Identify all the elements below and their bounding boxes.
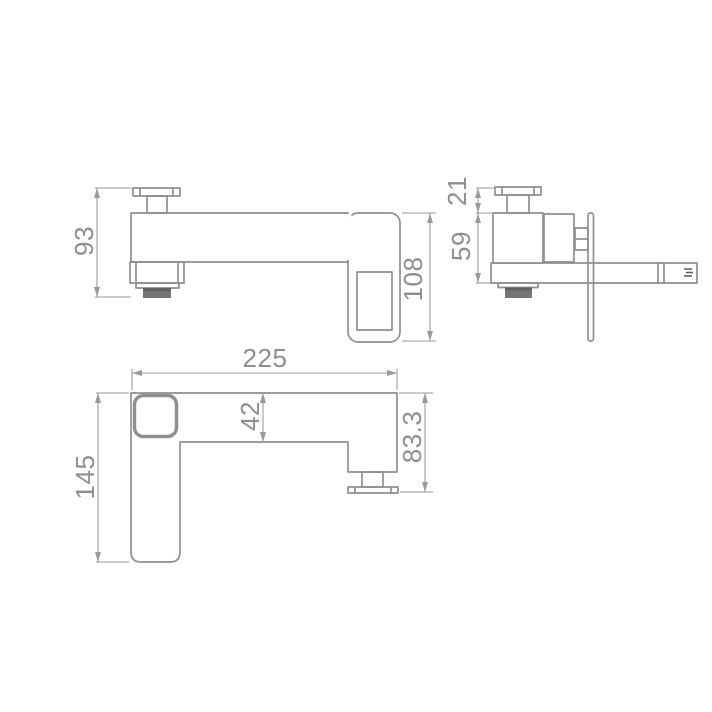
handle-height-dim-label: 21 xyxy=(442,176,472,206)
handle-section-dimension: 83.3 xyxy=(397,393,433,492)
body-block-side xyxy=(493,213,543,263)
aerator-thread-shadow xyxy=(505,288,532,291)
front-height-dim-label: 93 xyxy=(69,226,99,256)
spout-collar-lines xyxy=(136,262,178,283)
aerator-plate-side xyxy=(498,283,538,288)
plate-height-dim-label: 108 xyxy=(398,257,428,302)
handle-stem-top xyxy=(362,472,383,487)
diagram-canvas: 93 108 xyxy=(0,0,712,712)
handle-height-dimension: 21 xyxy=(442,176,496,213)
front-view: 93 108 xyxy=(69,188,436,342)
spout-length-dimension: 145 xyxy=(70,393,129,562)
handle-stem-front xyxy=(147,196,167,213)
aerator-plate-front xyxy=(136,283,179,288)
handle-stem-side xyxy=(507,195,529,213)
top-view: 225 42 83.3 145 xyxy=(70,343,433,562)
plate-height-dimension: 108 xyxy=(398,213,436,341)
total-length-dim-label: 225 xyxy=(243,343,288,373)
handle-cap-tabs xyxy=(502,187,534,195)
faucet-dimension-diagram: 93 108 xyxy=(0,0,712,712)
front-height-dimension: 93 xyxy=(69,188,133,297)
aerator-thread-shadow xyxy=(143,288,171,291)
spout-body-front xyxy=(131,213,348,262)
handle-cap-tabs xyxy=(140,188,173,196)
body-height-dimension: 59 xyxy=(446,213,491,283)
spout-length-dim-label: 145 xyxy=(70,455,100,500)
spout-bar-width-dim-label: 42 xyxy=(235,401,265,431)
side-view: 21 59 xyxy=(442,176,697,341)
total-length-dimension: 225 xyxy=(132,343,397,390)
handle-section-dim-label: 83.3 xyxy=(397,411,427,464)
edge-mask xyxy=(345,215,352,260)
cartridge-housing xyxy=(544,214,574,262)
spout-collar xyxy=(130,262,184,283)
handle-cap-tabs xyxy=(355,487,391,493)
body-height-dim-label: 59 xyxy=(446,231,476,261)
